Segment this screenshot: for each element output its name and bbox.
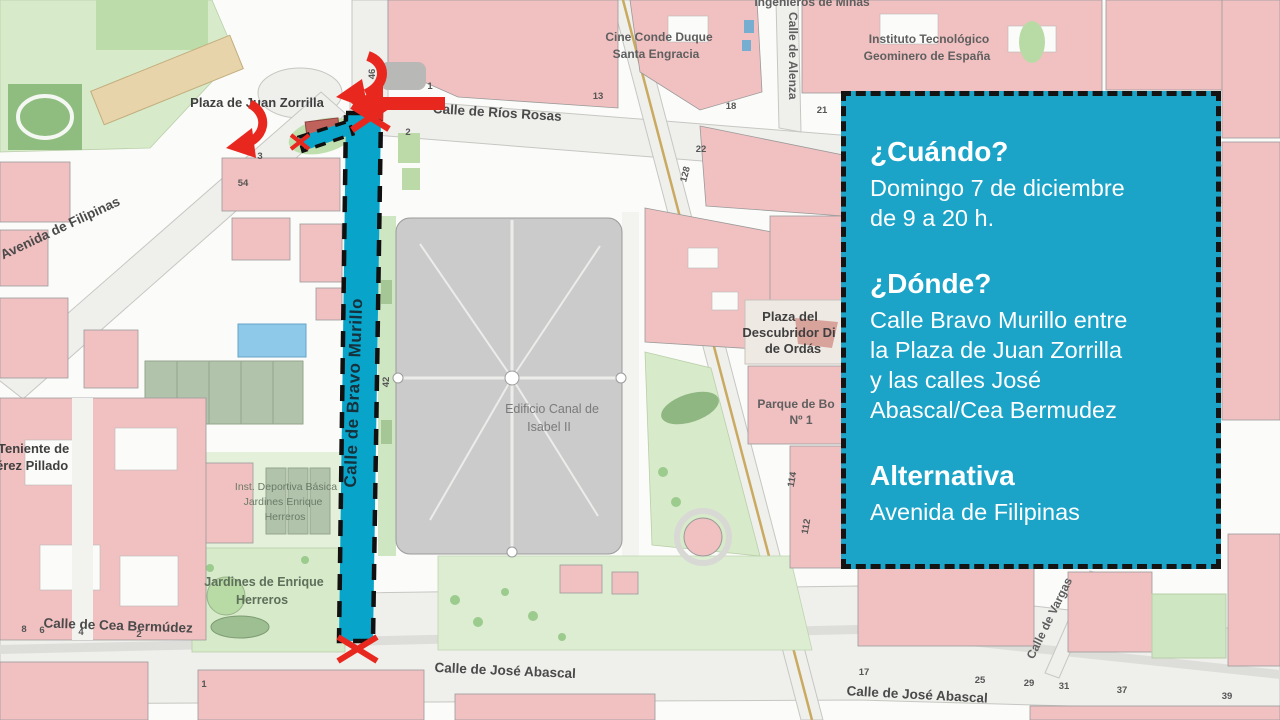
city-block: [1222, 142, 1280, 420]
city-block: [388, 0, 618, 108]
tree: [558, 633, 566, 641]
place-label: de Ordás: [765, 341, 821, 356]
city-block: [1228, 534, 1280, 666]
city-block: [198, 670, 424, 720]
side-street: [72, 398, 93, 640]
when-text-line: de 9 a 20 h.: [870, 203, 1192, 233]
city-block: [232, 218, 290, 260]
canal-isabel-ii-complex: [393, 218, 626, 557]
place-label: Herreros: [265, 511, 306, 523]
house-number: 8: [21, 624, 26, 635]
house-number: 4: [78, 627, 84, 638]
where-text-line: Calle Bravo Murillo entre: [870, 305, 1192, 335]
house-number: 31: [1059, 681, 1070, 692]
house-number: 2: [136, 629, 141, 640]
place-label: Edificio Canal de: [505, 402, 599, 416]
tree: [301, 556, 309, 564]
city-block: [0, 298, 68, 378]
place-label: Ingenieros de Minas: [754, 0, 870, 9]
tree: [658, 467, 668, 477]
place-label: Santa Engracia: [613, 47, 700, 61]
house-number: 128: [678, 165, 693, 183]
city-block: [790, 446, 843, 568]
blue-feature: [744, 20, 754, 33]
house-number: 1: [201, 679, 207, 690]
tree: [450, 595, 460, 605]
house-number: 1: [427, 81, 433, 92]
node: [507, 547, 517, 557]
tree: [671, 497, 681, 507]
city-block: [455, 694, 655, 720]
node: [505, 371, 519, 385]
when-title: ¿Cuándo?: [870, 136, 1192, 168]
street-closure-infographic: Plaza de Juan Zorrilla Calle de Ríos Ros…: [0, 0, 1280, 720]
swimming-pool: [238, 324, 306, 357]
house-number: 2: [405, 127, 410, 138]
house-number: 42: [381, 377, 392, 388]
courtyard: [712, 292, 738, 310]
place-label: Jardines Enrique: [244, 496, 323, 508]
detour-arrow-head: [226, 128, 256, 158]
house-number: 3: [257, 151, 262, 162]
green-patch: [1019, 21, 1045, 63]
tree: [501, 588, 509, 596]
green-patch: [402, 168, 420, 190]
canal-deposit: [396, 218, 622, 554]
house-number: 13: [593, 91, 604, 102]
node: [393, 373, 403, 383]
tree: [206, 564, 214, 572]
detour-arrow-straight: [383, 97, 445, 110]
city-block: [0, 662, 148, 720]
hedge: [381, 280, 392, 304]
traffic-island: [380, 62, 426, 90]
where-text-line: Abascal/Cea Bermudez: [870, 395, 1192, 425]
blue-feature: [742, 40, 751, 51]
house-number: 22: [696, 144, 707, 155]
tree: [528, 611, 538, 621]
house-number: 17: [859, 667, 870, 678]
city-block: [858, 568, 1034, 646]
place-label: Isabel II: [527, 420, 571, 434]
city-block: [316, 288, 342, 320]
city-block: [0, 162, 70, 222]
place-label: Plaza del: [762, 309, 818, 324]
where-text-line: la Plaza de Juan Zorrilla: [870, 335, 1192, 365]
when-section: ¿Cuándo? Domingo 7 de diciembre de 9 a 2…: [870, 136, 1192, 233]
house-number: 18: [726, 101, 737, 112]
place-label: Cine Conde Duque: [605, 30, 713, 44]
node: [616, 373, 626, 383]
city-block: [1068, 572, 1152, 652]
city-block: [300, 224, 342, 282]
courtyard: [688, 248, 718, 268]
house-number: 29: [1024, 678, 1035, 689]
place-label: Descubridor Di: [742, 325, 835, 340]
place-label: Nº 1: [789, 413, 812, 427]
place-label: Geominero de España: [864, 49, 991, 63]
street-canal-east: [622, 212, 639, 558]
place-label: érez Pillado: [0, 458, 68, 473]
tree: [473, 617, 483, 627]
small-building: [612, 572, 638, 594]
city-block: [1222, 0, 1280, 138]
house-number: 54: [238, 178, 249, 189]
green-block: [1152, 594, 1226, 658]
alternative-text-line: Avenida de Filipinas: [870, 497, 1192, 527]
city-block: [1030, 706, 1280, 720]
alternative-section: Alternativa Avenida de Filipinas: [870, 460, 1192, 527]
courtyard: [115, 428, 177, 470]
sports-field: [96, 0, 208, 50]
place-label: Teniente de: [0, 441, 69, 456]
courtyard: [120, 556, 178, 606]
house-number: 46: [367, 69, 378, 80]
alternative-title: Alternativa: [870, 460, 1192, 492]
city-block: [802, 0, 1102, 93]
house-number: 37: [1117, 685, 1128, 696]
place-label: Herreros: [236, 593, 288, 607]
garden-pond: [211, 616, 269, 638]
where-text-line: y las calles José: [870, 365, 1192, 395]
city-block: [770, 216, 843, 300]
house-number: 25: [975, 675, 986, 686]
hedge: [381, 420, 392, 444]
place-label: Instituto Tecnológico: [869, 32, 989, 46]
where-title: ¿Dónde?: [870, 268, 1192, 300]
city-block: [84, 330, 138, 388]
house-number: 21: [817, 105, 828, 116]
street-label: Calle de Alenza: [786, 12, 800, 100]
park-south-canal: [438, 556, 812, 650]
when-text-line: Domingo 7 de diciembre: [870, 173, 1192, 203]
small-building: [560, 565, 602, 593]
house-number: 6: [39, 625, 44, 636]
round-building: [684, 518, 722, 556]
place-label: Parque de Bo: [757, 397, 834, 411]
house-number: 39: [1222, 691, 1233, 702]
place-label: Inst. Deportiva Básica: [235, 481, 337, 493]
closure-info-panel: ¿Cuándo? Domingo 7 de diciembre de 9 a 2…: [841, 91, 1221, 569]
place-label: Jardines de Enrique: [204, 575, 324, 589]
where-section: ¿Dónde? Calle Bravo Murillo entre la Pla…: [870, 268, 1192, 425]
